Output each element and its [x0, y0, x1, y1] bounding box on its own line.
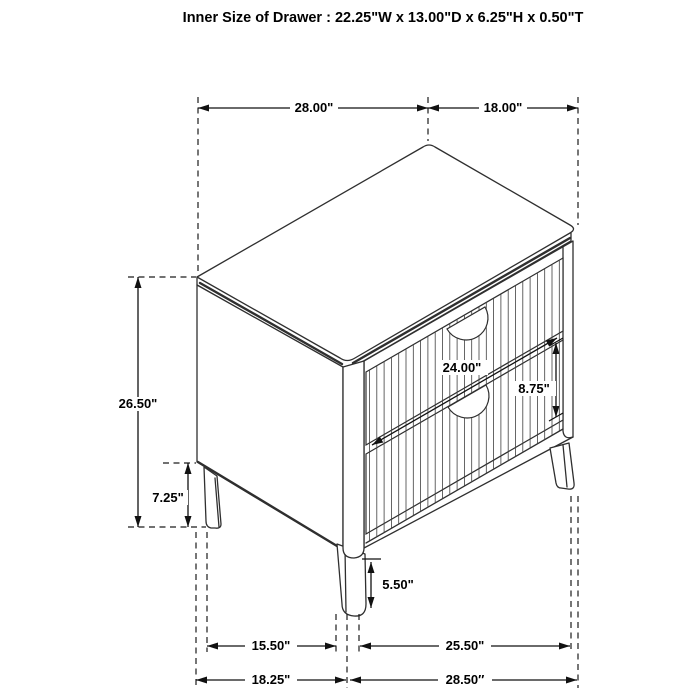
dim-front-leg-height: 5.50" — [382, 577, 413, 592]
dim-drawer-face-width: 24.00" — [443, 360, 482, 375]
furniture-dimension-diagram: Inner Size of Drawer : 22.25"W x 13.00"D… — [0, 0, 700, 700]
diagram-title: Inner Size of Drawer : 22.25"W x 13.00"D… — [183, 10, 584, 26]
dim-drawer-face-height: 8.75" — [518, 381, 549, 396]
dim-top-width: 28.00" — [295, 100, 334, 115]
dim-overall-height: 26.50" — [119, 396, 158, 411]
nightstand-line-drawing: Inner Size of Drawer : 22.25"W x 13.00"D… — [0, 0, 700, 700]
dim-base-width: 28.50″ — [446, 672, 485, 687]
dim-base-depth: 18.25" — [252, 672, 291, 687]
corner-post — [343, 361, 364, 558]
dim-leg-span-side: 15.50" — [252, 638, 291, 653]
leg-right — [550, 443, 574, 489]
dim-top-depth: 18.00" — [484, 100, 523, 115]
dim-leg-span-front: 25.50" — [446, 638, 485, 653]
dim-leg-clearance-side: 7.25" — [152, 490, 183, 505]
